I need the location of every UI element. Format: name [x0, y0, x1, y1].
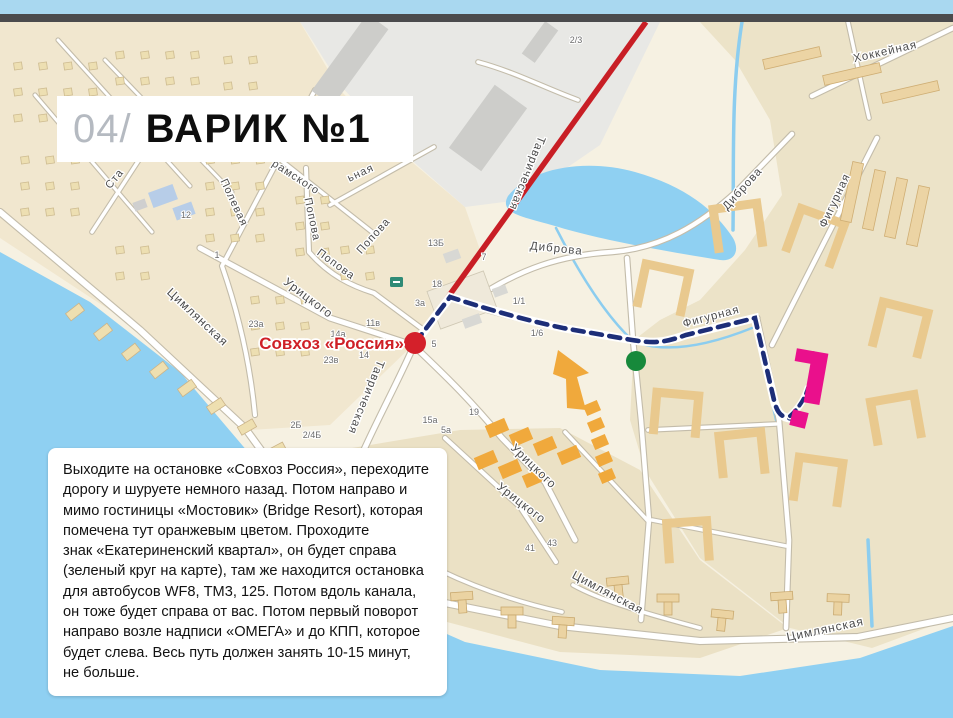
house-number: 15а: [422, 415, 437, 425]
house-number: 41: [525, 543, 535, 553]
title-index: 04/: [73, 107, 132, 152]
slide: ЦимлянскаяЦимлянскаяЦимлянскаяУрицкогоУр…: [0, 0, 953, 718]
directions-panel: Выходите на остановке «Совхоз Россия», п…: [48, 448, 447, 696]
house-number: 11в: [366, 318, 380, 328]
ekaterininsky-kvartal-sign-marker: [626, 351, 646, 371]
bus-stop-label: Совхоз «Россия»: [259, 334, 404, 353]
house-number: 12: [181, 210, 191, 220]
header-bar: [0, 14, 953, 22]
house-number: 43: [547, 538, 557, 548]
house-number: 7: [481, 252, 486, 262]
house-number: 5: [431, 339, 436, 349]
bus-stop-marker: [404, 332, 426, 354]
house-number: 13Б: [428, 238, 444, 248]
title-name: ВАРИК №1: [146, 107, 372, 152]
page-title: 04/ ВАРИК №1: [57, 96, 413, 162]
poi-icon: [390, 277, 403, 287]
house-number: 23в: [324, 355, 339, 365]
house-number: 1/1: [513, 296, 526, 306]
house-number: 1/6: [531, 328, 544, 338]
house-number: 2Б: [291, 420, 302, 430]
house-number: 2/4Б: [303, 430, 322, 440]
house-number: 23а: [248, 319, 263, 329]
house-number: 18: [432, 279, 442, 289]
house-number: 19: [469, 407, 479, 417]
house-number: 1: [214, 250, 219, 260]
house-number: 3а: [415, 298, 425, 308]
house-number: 5а: [441, 425, 451, 435]
house-number: 2/3: [570, 35, 583, 45]
header-strip: [0, 0, 953, 14]
